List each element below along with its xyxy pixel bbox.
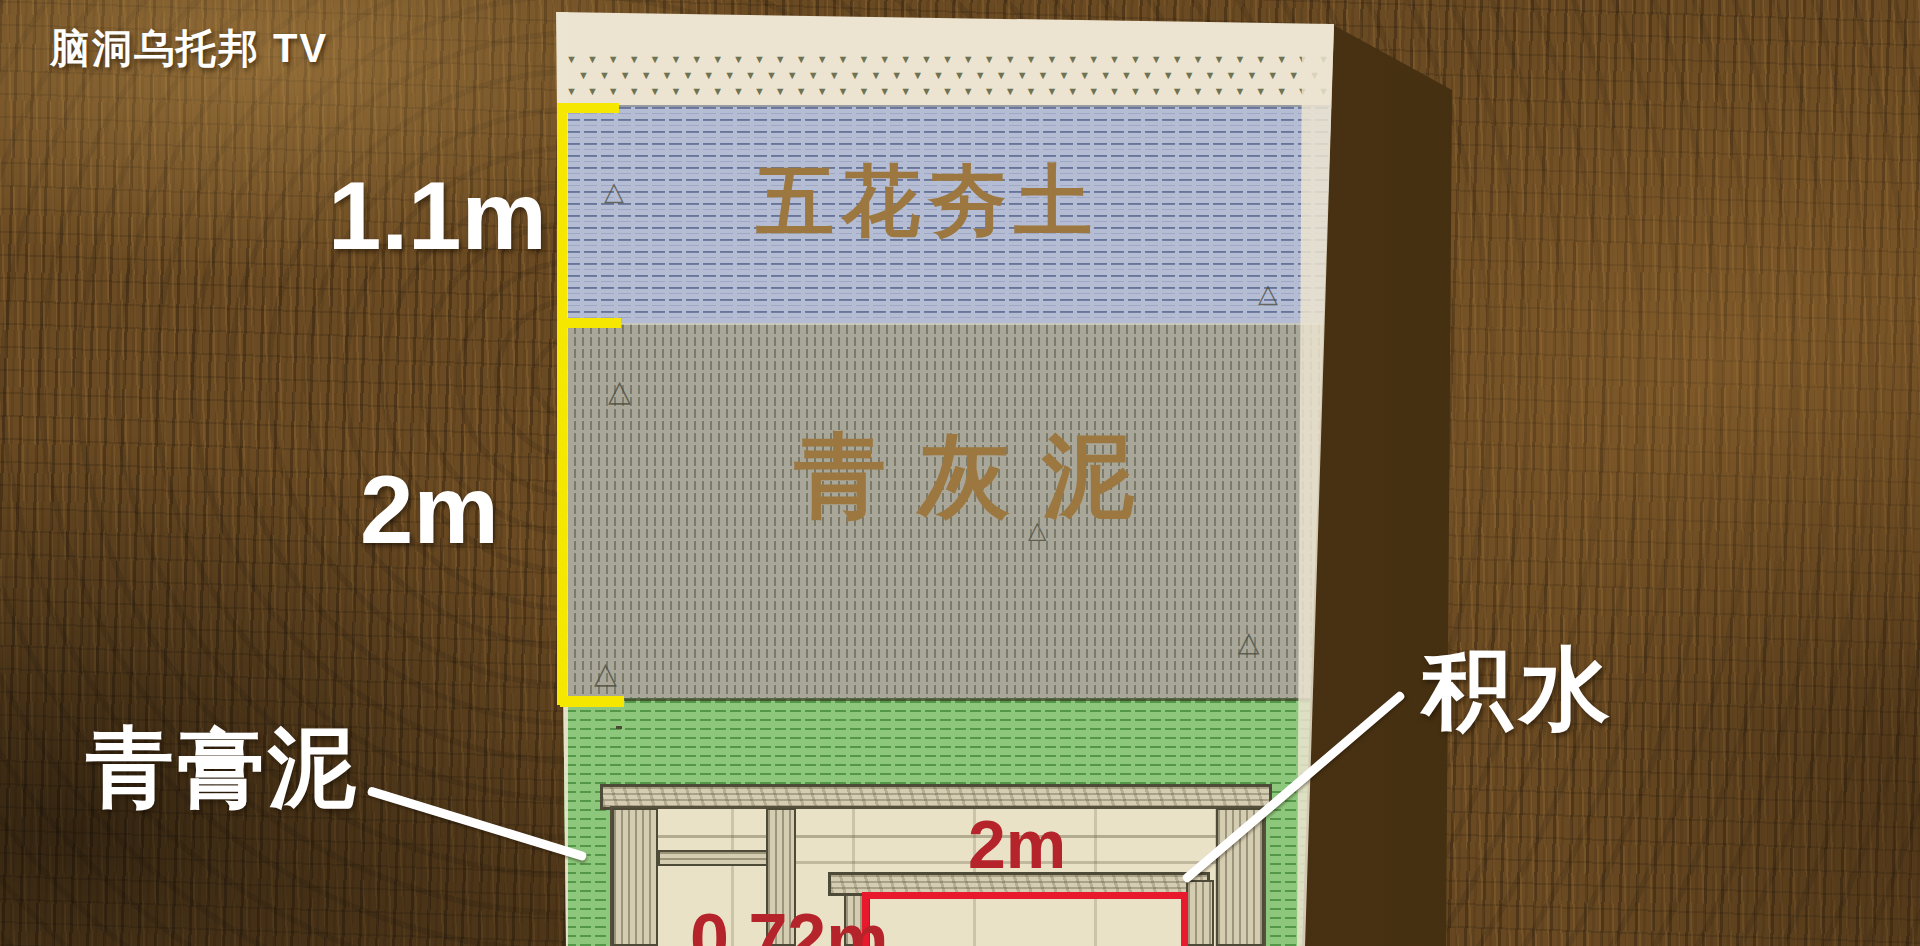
green-clay-callout-label: 青膏泥: [86, 724, 359, 812]
rammed-earth-label: 五花夯土: [756, 162, 1100, 240]
triangle-mark: △: [1028, 518, 1046, 542]
grass-pattern-row: ▼▼▼▼▼▼▼▼▼▼▼▼▼▼▼▼▼▼▼▼▼▼▼▼▼▼▼▼▼▼▼▼▼▼▼▼▼▼▼▼…: [566, 68, 1328, 84]
depth-bracket-tick-top: [557, 103, 619, 113]
gray-mud-label: 青灰泥: [794, 430, 1166, 522]
coffin-width-label: 0.72m: [690, 904, 888, 946]
chamber-width-label: 2m: [968, 810, 1066, 878]
water-callout-label: 积水: [1422, 644, 1618, 734]
coffin-outline-red: [862, 892, 1188, 946]
depth-label-gray-mud: 2m: [360, 462, 499, 558]
triangle-mark: △: [608, 376, 631, 406]
tomb-log-arcs: [616, 726, 1242, 790]
depth-bracket-tick-middle: [557, 318, 621, 328]
tomb-arc: [616, 726, 622, 729]
depth-bracket-tick-bottom: [560, 696, 624, 707]
video-frame: ▼▼▼▼▼▼▼▼▼▼▼▼▼▼▼▼▼▼▼▼▼▼▼▼▼▼▼▼▼▼▼▼▼▼▼▼▼▼▼▼…: [0, 0, 1920, 946]
tomb-wall-left: [612, 808, 658, 946]
channel-watermark: 脑洞乌托邦 TV: [50, 28, 328, 68]
triangle-mark: △: [604, 178, 624, 204]
depth-label-rammed-earth: 1.1m: [328, 168, 547, 264]
triangle-mark: △: [594, 658, 617, 688]
coffin-post-right: [1186, 880, 1214, 946]
depth-bracket-line: [557, 103, 567, 705]
tomb-plank: [658, 850, 768, 866]
grass-pattern-row: ▼▼▼▼▼▼▼▼▼▼▼▼▼▼▼▼▼▼▼▼▼▼▼▼▼▼▼▼▼▼▼▼▼▼▼▼▼▼▼▼…: [566, 52, 1328, 68]
triangle-mark: △: [1238, 628, 1260, 656]
triangle-mark: △: [1258, 280, 1278, 306]
grass-pattern-row: ▼▼▼▼▼▼▼▼▼▼▼▼▼▼▼▼▼▼▼▼▼▼▼▼▼▼▼▼▼▼▼▼▼▼▼▼▼▼▼▼…: [566, 84, 1328, 100]
